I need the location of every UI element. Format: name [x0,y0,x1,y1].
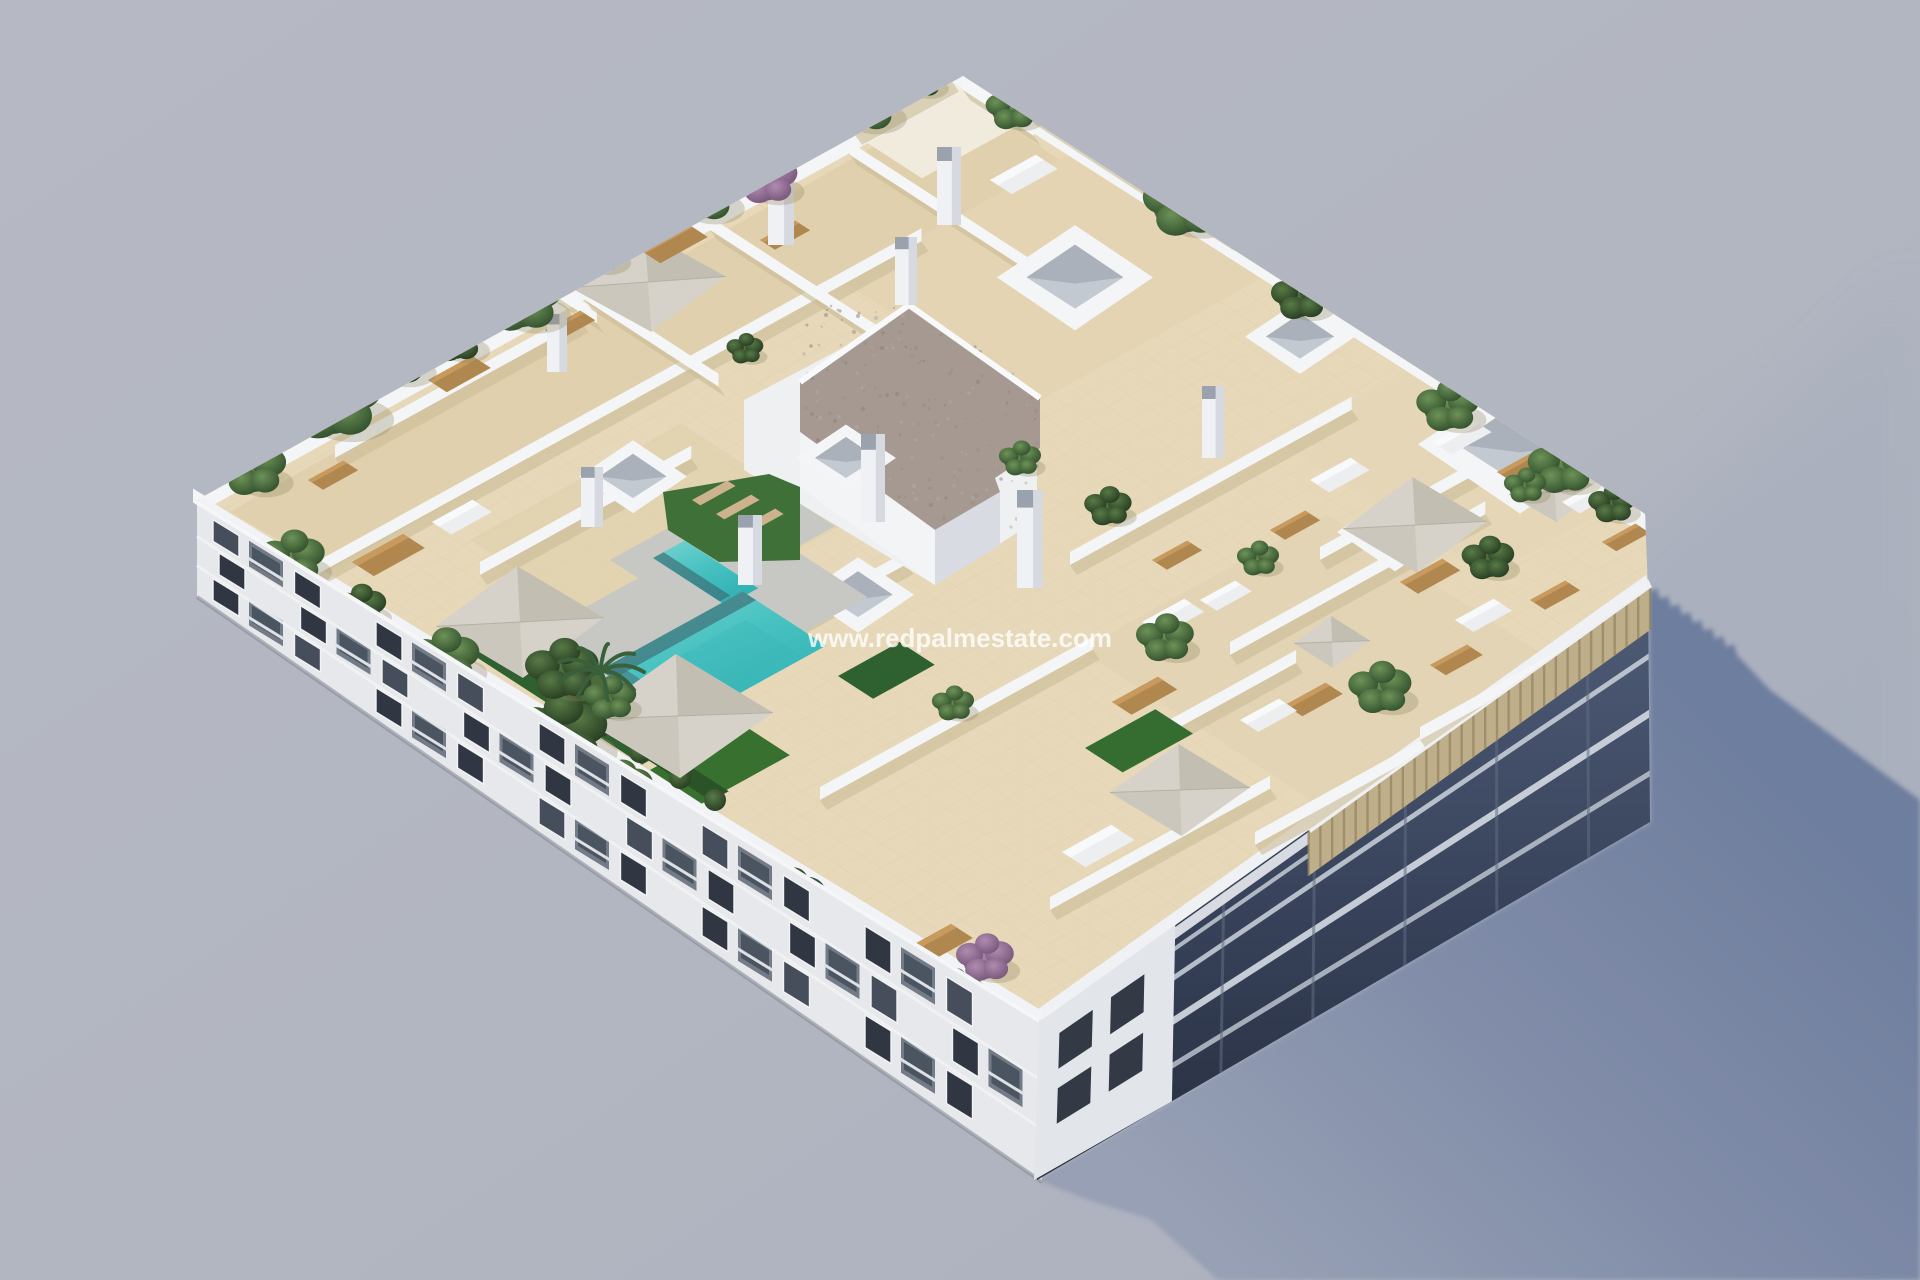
svg-text:www.redpalmestate.com: www.redpalmestate.com [807,623,1112,653]
